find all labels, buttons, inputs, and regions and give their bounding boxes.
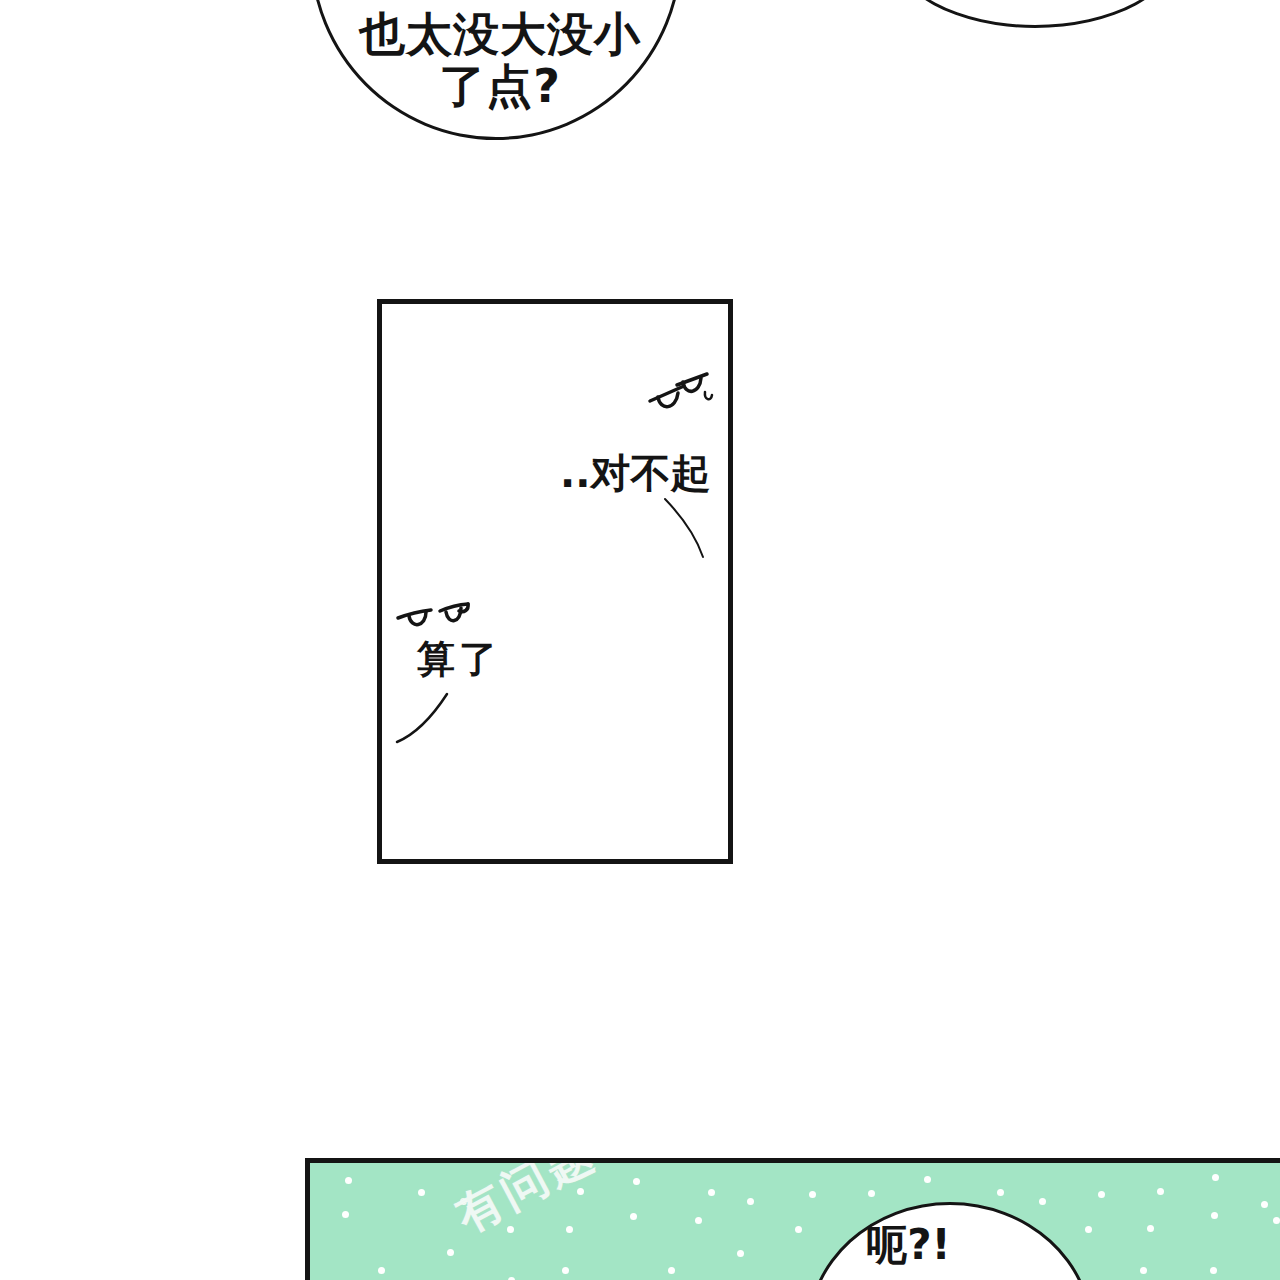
comic-page: 也太没大没小 了点? — [0, 0, 1280, 1280]
polka-dot — [1212, 1174, 1219, 1181]
polka-dot — [737, 1250, 744, 1257]
polka-dot — [809, 1191, 816, 1198]
polka-dot — [342, 1211, 349, 1218]
polka-dot — [418, 1189, 425, 1196]
polka-dot — [566, 1226, 573, 1233]
speech-line-1: 也太没大没小 — [320, 8, 680, 60]
polka-dot — [378, 1267, 385, 1274]
polka-dot — [924, 1176, 931, 1183]
green-dotted-panel: 有问题 呃?! — [305, 1158, 1280, 1280]
polka-dot — [633, 1178, 640, 1185]
speech-line-2: 了点? — [320, 60, 680, 112]
cheek-line-right-icon — [665, 499, 703, 557]
polka-dot — [562, 1267, 569, 1274]
story-panel: ..对不起 算了 — [377, 299, 733, 864]
sweat-tick-icon — [705, 392, 712, 399]
polka-dot — [1085, 1226, 1092, 1233]
polka-dot — [695, 1217, 702, 1224]
polka-dot — [1039, 1198, 1046, 1205]
surprise-text: 呃?! — [828, 1217, 988, 1273]
polka-dot — [1211, 1212, 1218, 1219]
polka-dot — [1140, 1267, 1147, 1274]
apology-text: ..对不起 — [560, 446, 710, 501]
polka-dot — [795, 1226, 802, 1233]
polka-dot — [1147, 1225, 1154, 1232]
polka-dot — [447, 1249, 454, 1256]
polka-dot — [1273, 1217, 1280, 1224]
polka-dot — [747, 1198, 754, 1205]
polka-dot — [1098, 1191, 1105, 1198]
panel-doodles — [382, 304, 728, 859]
resignation-text: 算了 — [417, 634, 501, 685]
polka-dot — [997, 1189, 1004, 1196]
polka-dot — [668, 1267, 675, 1274]
polka-dot — [630, 1213, 637, 1220]
polka-dot — [345, 1177, 352, 1184]
annoyed-eyes-icon — [398, 604, 468, 625]
speech-bubble-top-right — [892, 0, 1178, 28]
smug-eyes-icon — [650, 374, 707, 407]
polka-dot — [708, 1189, 715, 1196]
polka-dot — [1261, 1201, 1268, 1208]
polka-dot — [868, 1190, 875, 1197]
watermark-text: 有问题 — [445, 1158, 607, 1247]
polka-dot — [1210, 1267, 1217, 1274]
cheek-line-left-icon — [397, 694, 447, 742]
polka-dot — [1157, 1188, 1164, 1195]
speech-bubble-top-left-text: 也太没大没小 了点? — [320, 8, 680, 112]
